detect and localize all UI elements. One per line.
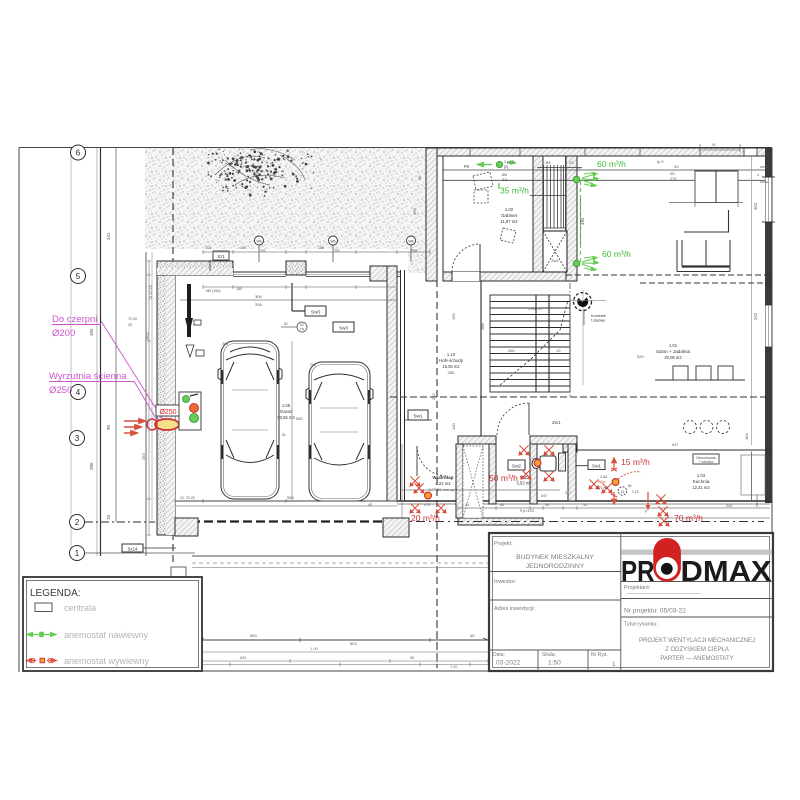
svg-text:206: 206 [255, 302, 262, 307]
svg-text:BUDYNEK MIESZKALNY: BUDYNEK MIESZKALNY [516, 554, 594, 561]
svg-text:2T2: 2T2 [670, 177, 677, 181]
svg-text:17x17,6: 17x17,6 [528, 307, 542, 311]
svg-text:1 00: 1 00 [450, 665, 457, 669]
svg-text:PARTER — ANEMOSTATY: PARTER — ANEMOSTATY [660, 656, 733, 662]
svg-text:Do czerpni: Do czerpni [52, 314, 97, 325]
svg-text:184: 184 [744, 433, 749, 440]
svg-text:Gabinet: Gabinet [501, 213, 518, 218]
svg-text:Data:: Data: [493, 652, 505, 658]
svg-text:Nr Rys.: Nr Rys. [591, 652, 608, 658]
svg-text:Ø250: Ø250 [159, 409, 176, 416]
svg-text:242: 242 [753, 312, 758, 320]
svg-text:260: 260 [508, 348, 515, 353]
svg-text:550: 550 [287, 495, 294, 500]
svg-text:240: 240 [726, 504, 732, 508]
svg-text:20 25: 20 25 [186, 496, 195, 500]
svg-text:[2]: [2] [504, 165, 508, 169]
svg-text:SL: SL [282, 433, 286, 437]
svg-text:305: 305 [412, 249, 418, 253]
svg-text:lp 9: lp 9 [657, 159, 664, 164]
svg-text:+ ociekacz: + ociekacz [698, 460, 714, 464]
svg-text:TN: TN [300, 328, 305, 332]
svg-text:Salon + Jadalnia: Salon + Jadalnia [656, 349, 691, 354]
svg-text:Nr projektu: 05/03-22: Nr projektu: 05/03-22 [624, 608, 686, 615]
svg-text:547: 547 [672, 443, 678, 447]
svg-text:Wpu.: Wpu. [598, 480, 606, 484]
svg-text:150: 150 [318, 246, 324, 250]
svg-text:70 20: 70 20 [128, 317, 137, 321]
svg-text:30,06 m2: 30,06 m2 [664, 355, 682, 360]
svg-text:90: 90 [106, 424, 111, 430]
svg-text:363: 363 [412, 208, 417, 215]
svg-text:Zw1: Zw1 [551, 258, 559, 263]
svg-text:547: 547 [541, 494, 547, 498]
svg-text:4,22 m2: 4,22 m2 [435, 481, 451, 486]
svg-text:10: 10 [583, 503, 587, 507]
svg-text:4: 4 [757, 173, 759, 177]
svg-text:45: 45 [368, 503, 372, 507]
svg-text:35 m³/h: 35 m³/h [500, 186, 529, 196]
svg-text:12,21 m2: 12,21 m2 [692, 485, 710, 490]
svg-text:Sw1: Sw1 [592, 463, 601, 468]
svg-text:LEGENDA:: LEGENDA: [30, 588, 81, 599]
svg-text:24: 24 [465, 503, 469, 507]
svg-text:PROJEKT WENTYLACJI MECHANICZNE: PROJEKT WENTYLACJI MECHANICZNEJ [639, 638, 755, 644]
svg-text:PR: PR [621, 556, 655, 588]
svg-text:1.01: 1.01 [669, 343, 678, 348]
svg-text:Ø250: Ø250 [49, 385, 72, 396]
svg-text:Z ODZYSKIEM CIEPŁA: Z ODZYSKIEM CIEPŁA [665, 647, 729, 653]
svg-text:341: 341 [106, 232, 111, 240]
svg-text:23: 23 [569, 160, 574, 165]
svg-text:JEDNORODZINNY: JEDNORODZINNY [526, 563, 585, 570]
svg-text:305: 305 [260, 249, 266, 253]
svg-text:4X: 4X [674, 164, 679, 169]
svg-text:10: 10 [180, 496, 184, 500]
svg-text:550: 550 [250, 633, 257, 638]
svg-text:604: 604 [350, 641, 357, 646]
svg-text:+80 (150): +80 (150) [205, 289, 220, 293]
svg-text:90: 90 [418, 176, 422, 180]
svg-text:Ø1: Ø1 [670, 172, 675, 176]
svg-text:150: 150 [240, 246, 246, 250]
svg-text:15 m³/h: 15 m³/h [621, 457, 650, 467]
svg-text:Tytuł rysunku:: Tytuł rysunku: [624, 622, 658, 628]
svg-text:50 m³/h: 50 m³/h [489, 473, 518, 483]
svg-text:60 m³/h: 60 m³/h [597, 159, 626, 169]
svg-text:305: 305 [334, 249, 340, 253]
svg-text:52: 52 [284, 322, 288, 326]
svg-text:1,71 m2: 1,71 m2 [596, 486, 608, 490]
svg-text:282: 282 [431, 393, 436, 400]
svg-text:1 00: 1 00 [310, 646, 319, 651]
svg-text:1:50: 1:50 [548, 660, 561, 667]
svg-text:13: 13 [621, 490, 625, 494]
svg-text:Ø200: Ø200 [52, 328, 75, 339]
svg-text:365: 365 [89, 328, 94, 336]
svg-text:Sz14: Sz14 [127, 547, 138, 552]
svg-text:463: 463 [753, 202, 758, 210]
svg-text:520: 520 [637, 354, 644, 359]
svg-text:Inwestor:: Inwestor: [494, 579, 517, 585]
svg-text:03-2022: 03-2022 [496, 660, 521, 667]
svg-text:306: 306 [255, 294, 262, 299]
svg-text:9 p=120: 9 p=120 [520, 509, 534, 513]
svg-text:70 m³/h: 70 m³/h [674, 513, 703, 523]
svg-text:285: 285 [448, 370, 455, 375]
svg-text:292: 292 [310, 363, 316, 367]
svg-text:3,53 m2: 3,53 m2 [516, 481, 532, 486]
svg-text:180: 180 [236, 287, 242, 291]
svg-text:Sw3: Sw3 [339, 326, 348, 331]
svg-text:15,05 m2: 15,05 m2 [442, 364, 460, 369]
svg-text:1.04: 1.04 [600, 475, 607, 479]
svg-text:580: 580 [296, 416, 303, 421]
svg-text:70 20 25: 70 20 25 [149, 285, 153, 300]
svg-text:30,55 m2: 30,55 m2 [277, 415, 295, 420]
svg-text:Sw2: Sw2 [512, 464, 521, 469]
svg-text:155: 155 [451, 313, 456, 320]
svg-text:13: 13 [556, 348, 561, 353]
svg-text:479: 479 [424, 503, 430, 507]
svg-text:t.stalowy: t.stalowy [591, 319, 605, 323]
svg-text:60 m³/h: 60 m³/h [602, 249, 631, 259]
svg-text:Wyrzutnia ścienna: Wyrzutnia ścienna [49, 371, 127, 382]
svg-text:Holl+schody: Holl+schody [439, 358, 464, 363]
svg-text:4: 4 [76, 388, 81, 397]
svg-text:20 m³/h: 20 m³/h [411, 513, 440, 523]
svg-text:Zw1: Zw1 [552, 420, 561, 425]
svg-text:FK: FK [464, 164, 470, 169]
svg-text:1: 1 [75, 549, 80, 558]
svg-text:Garaż: Garaż [280, 409, 293, 414]
svg-text:Sz1: Sz1 [217, 254, 225, 259]
svg-text:23: 23 [576, 166, 581, 171]
svg-text:W6: W6 [408, 239, 413, 243]
svg-text:Sw1: Sw1 [414, 414, 423, 419]
svg-text:385: 385 [89, 462, 94, 470]
svg-text:2:2: 2:2 [502, 178, 507, 182]
svg-text:Sw3: Sw3 [311, 310, 320, 315]
svg-text:DMAX: DMAX [681, 556, 773, 588]
svg-text:Skala:: Skala: [542, 652, 556, 658]
svg-text:Adres inwestycji:: Adres inwestycji: [494, 606, 535, 612]
svg-text:Kuchnia: Kuchnia [693, 479, 710, 484]
svg-text:1,15: 1,15 [632, 490, 639, 494]
svg-text:Projekt:: Projekt: [494, 541, 513, 547]
svg-text:centrala: centrala [64, 603, 96, 613]
svg-text:Wiatrołap: Wiatrołap [433, 475, 454, 480]
svg-text:W6: W6 [256, 239, 261, 243]
svg-text:36: 36 [410, 656, 414, 660]
svg-text:5: 5 [76, 272, 81, 281]
svg-text:60: 60 [500, 503, 504, 507]
svg-text:10: 10 [106, 514, 111, 520]
svg-text:103: 103 [205, 246, 211, 250]
svg-text:45: 45 [470, 633, 475, 638]
svg-text:830: 830 [240, 656, 246, 660]
svg-text:1 co C: 1 co C [504, 160, 515, 164]
svg-text:anemostat wywiewny: anemostat wywiewny [64, 656, 150, 666]
svg-text:Kominek: Kominek [591, 314, 606, 318]
svg-text:W6: W6 [330, 239, 335, 243]
svg-text:2: 2 [75, 518, 80, 527]
svg-text:288: 288 [480, 323, 485, 330]
svg-text:50: 50 [545, 503, 549, 507]
svg-text:11,97 m2: 11,97 m2 [500, 219, 518, 224]
svg-text:Ø4: Ø4 [502, 173, 507, 177]
svg-text:XL: XL [712, 143, 716, 147]
svg-text:1.03: 1.03 [697, 473, 706, 478]
svg-text:92: 92 [300, 323, 304, 327]
svg-text:anemostat nawiewny: anemostat nawiewny [64, 630, 149, 640]
svg-text:263: 263 [141, 453, 146, 460]
svg-text:100: 100 [451, 423, 456, 430]
svg-text:Projektant:: Projektant: [624, 585, 651, 591]
svg-text:W: W [628, 484, 632, 488]
svg-text:1.02: 1.02 [505, 207, 514, 212]
svg-text:65: 65 [546, 160, 551, 165]
svg-text:1.10: 1.10 [447, 352, 456, 357]
svg-text:368: 368 [222, 342, 228, 346]
svg-text:p: p [645, 509, 647, 513]
svg-text:25: 25 [128, 323, 132, 327]
svg-text:3: 3 [75, 434, 80, 443]
svg-text:1.05: 1.05 [282, 403, 291, 408]
svg-text:6: 6 [76, 149, 81, 158]
svg-text:317: 317 [565, 491, 571, 495]
svg-text:1: 1 [612, 661, 616, 668]
